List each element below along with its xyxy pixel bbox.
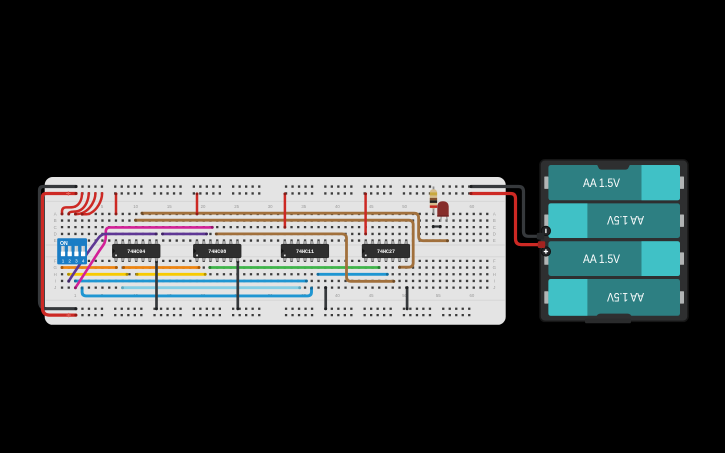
svg-text:I: I: [494, 279, 495, 284]
svg-text:55: 55: [436, 293, 441, 298]
svg-text:C: C: [493, 225, 496, 230]
svg-text:J: J: [493, 285, 495, 290]
svg-text:4: 4: [82, 258, 85, 263]
svg-text:50: 50: [402, 204, 407, 209]
svg-text:A: A: [54, 212, 57, 217]
svg-text:D: D: [493, 232, 496, 237]
svg-text:J: J: [54, 285, 56, 290]
svg-text:35: 35: [301, 204, 306, 209]
svg-text:25: 25: [234, 204, 239, 209]
svg-text:2: 2: [68, 258, 71, 263]
svg-text:20: 20: [201, 204, 206, 209]
svg-text:F: F: [54, 258, 57, 263]
svg-text:74HC27: 74HC27: [377, 249, 395, 255]
svg-text:B: B: [493, 218, 496, 223]
svg-text:E: E: [54, 238, 57, 243]
svg-text:AA 1.5V: AA 1.5V: [606, 290, 644, 304]
svg-text:C: C: [54, 225, 57, 230]
svg-text:30: 30: [268, 204, 273, 209]
svg-text:H: H: [54, 272, 57, 277]
svg-text:10: 10: [133, 204, 138, 209]
svg-text:15: 15: [167, 204, 172, 209]
svg-text:40: 40: [335, 293, 340, 298]
svg-text:AA 1.5V: AA 1.5V: [583, 252, 621, 266]
svg-text:40: 40: [335, 204, 340, 209]
svg-text:45: 45: [369, 204, 374, 209]
svg-text:74HC08: 74HC08: [208, 249, 226, 255]
svg-text:60: 60: [470, 293, 475, 298]
svg-text:45: 45: [369, 293, 374, 298]
svg-text:74HC11: 74HC11: [296, 249, 314, 255]
svg-text:AA 1.5V: AA 1.5V: [606, 213, 644, 227]
svg-text:E: E: [493, 238, 496, 243]
svg-text:D: D: [54, 232, 57, 237]
svg-text:I: I: [55, 279, 56, 284]
svg-text:F: F: [493, 258, 496, 263]
svg-text:1: 1: [62, 258, 65, 263]
svg-text:A: A: [493, 212, 496, 217]
svg-text:60: 60: [470, 204, 475, 209]
svg-text:H: H: [493, 272, 496, 277]
svg-text:AA 1.5V: AA 1.5V: [583, 176, 621, 190]
svg-text:3: 3: [75, 258, 78, 263]
svg-text:B: B: [54, 218, 57, 223]
svg-text:74HC04: 74HC04: [127, 249, 145, 255]
